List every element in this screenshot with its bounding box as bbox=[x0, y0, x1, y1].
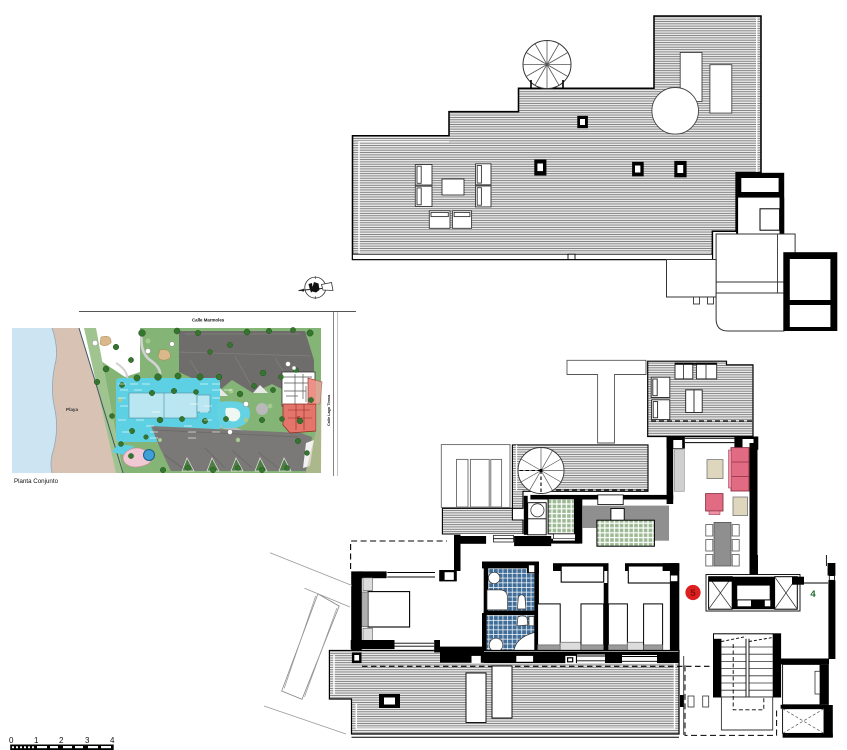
svg-text:Calle Marmoles: Calle Marmoles bbox=[192, 318, 225, 323]
svg-text:5: 5 bbox=[690, 588, 696, 599]
svg-text:Playa: Playa bbox=[66, 407, 78, 412]
svg-text:Calle Lago Timsa: Calle Lago Timsa bbox=[327, 394, 331, 426]
svg-text:4: 4 bbox=[810, 589, 816, 600]
svg-text:2: 2 bbox=[59, 736, 64, 745]
svg-text:Planta Conjunto: Planta Conjunto bbox=[14, 478, 59, 485]
svg-text:0: 0 bbox=[9, 736, 14, 745]
svg-text:3: 3 bbox=[85, 736, 90, 745]
svg-text:4: 4 bbox=[110, 736, 115, 745]
svg-text:1: 1 bbox=[34, 736, 39, 745]
